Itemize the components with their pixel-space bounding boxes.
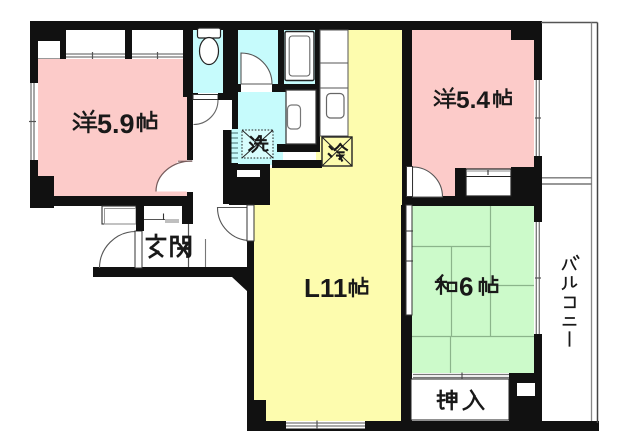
svg-text:5.4: 5.4 <box>456 87 490 114</box>
svg-text:5.9: 5.9 <box>97 109 135 139</box>
svg-text:6: 6 <box>459 272 473 302</box>
svg-text:L11: L11 <box>304 273 347 303</box>
